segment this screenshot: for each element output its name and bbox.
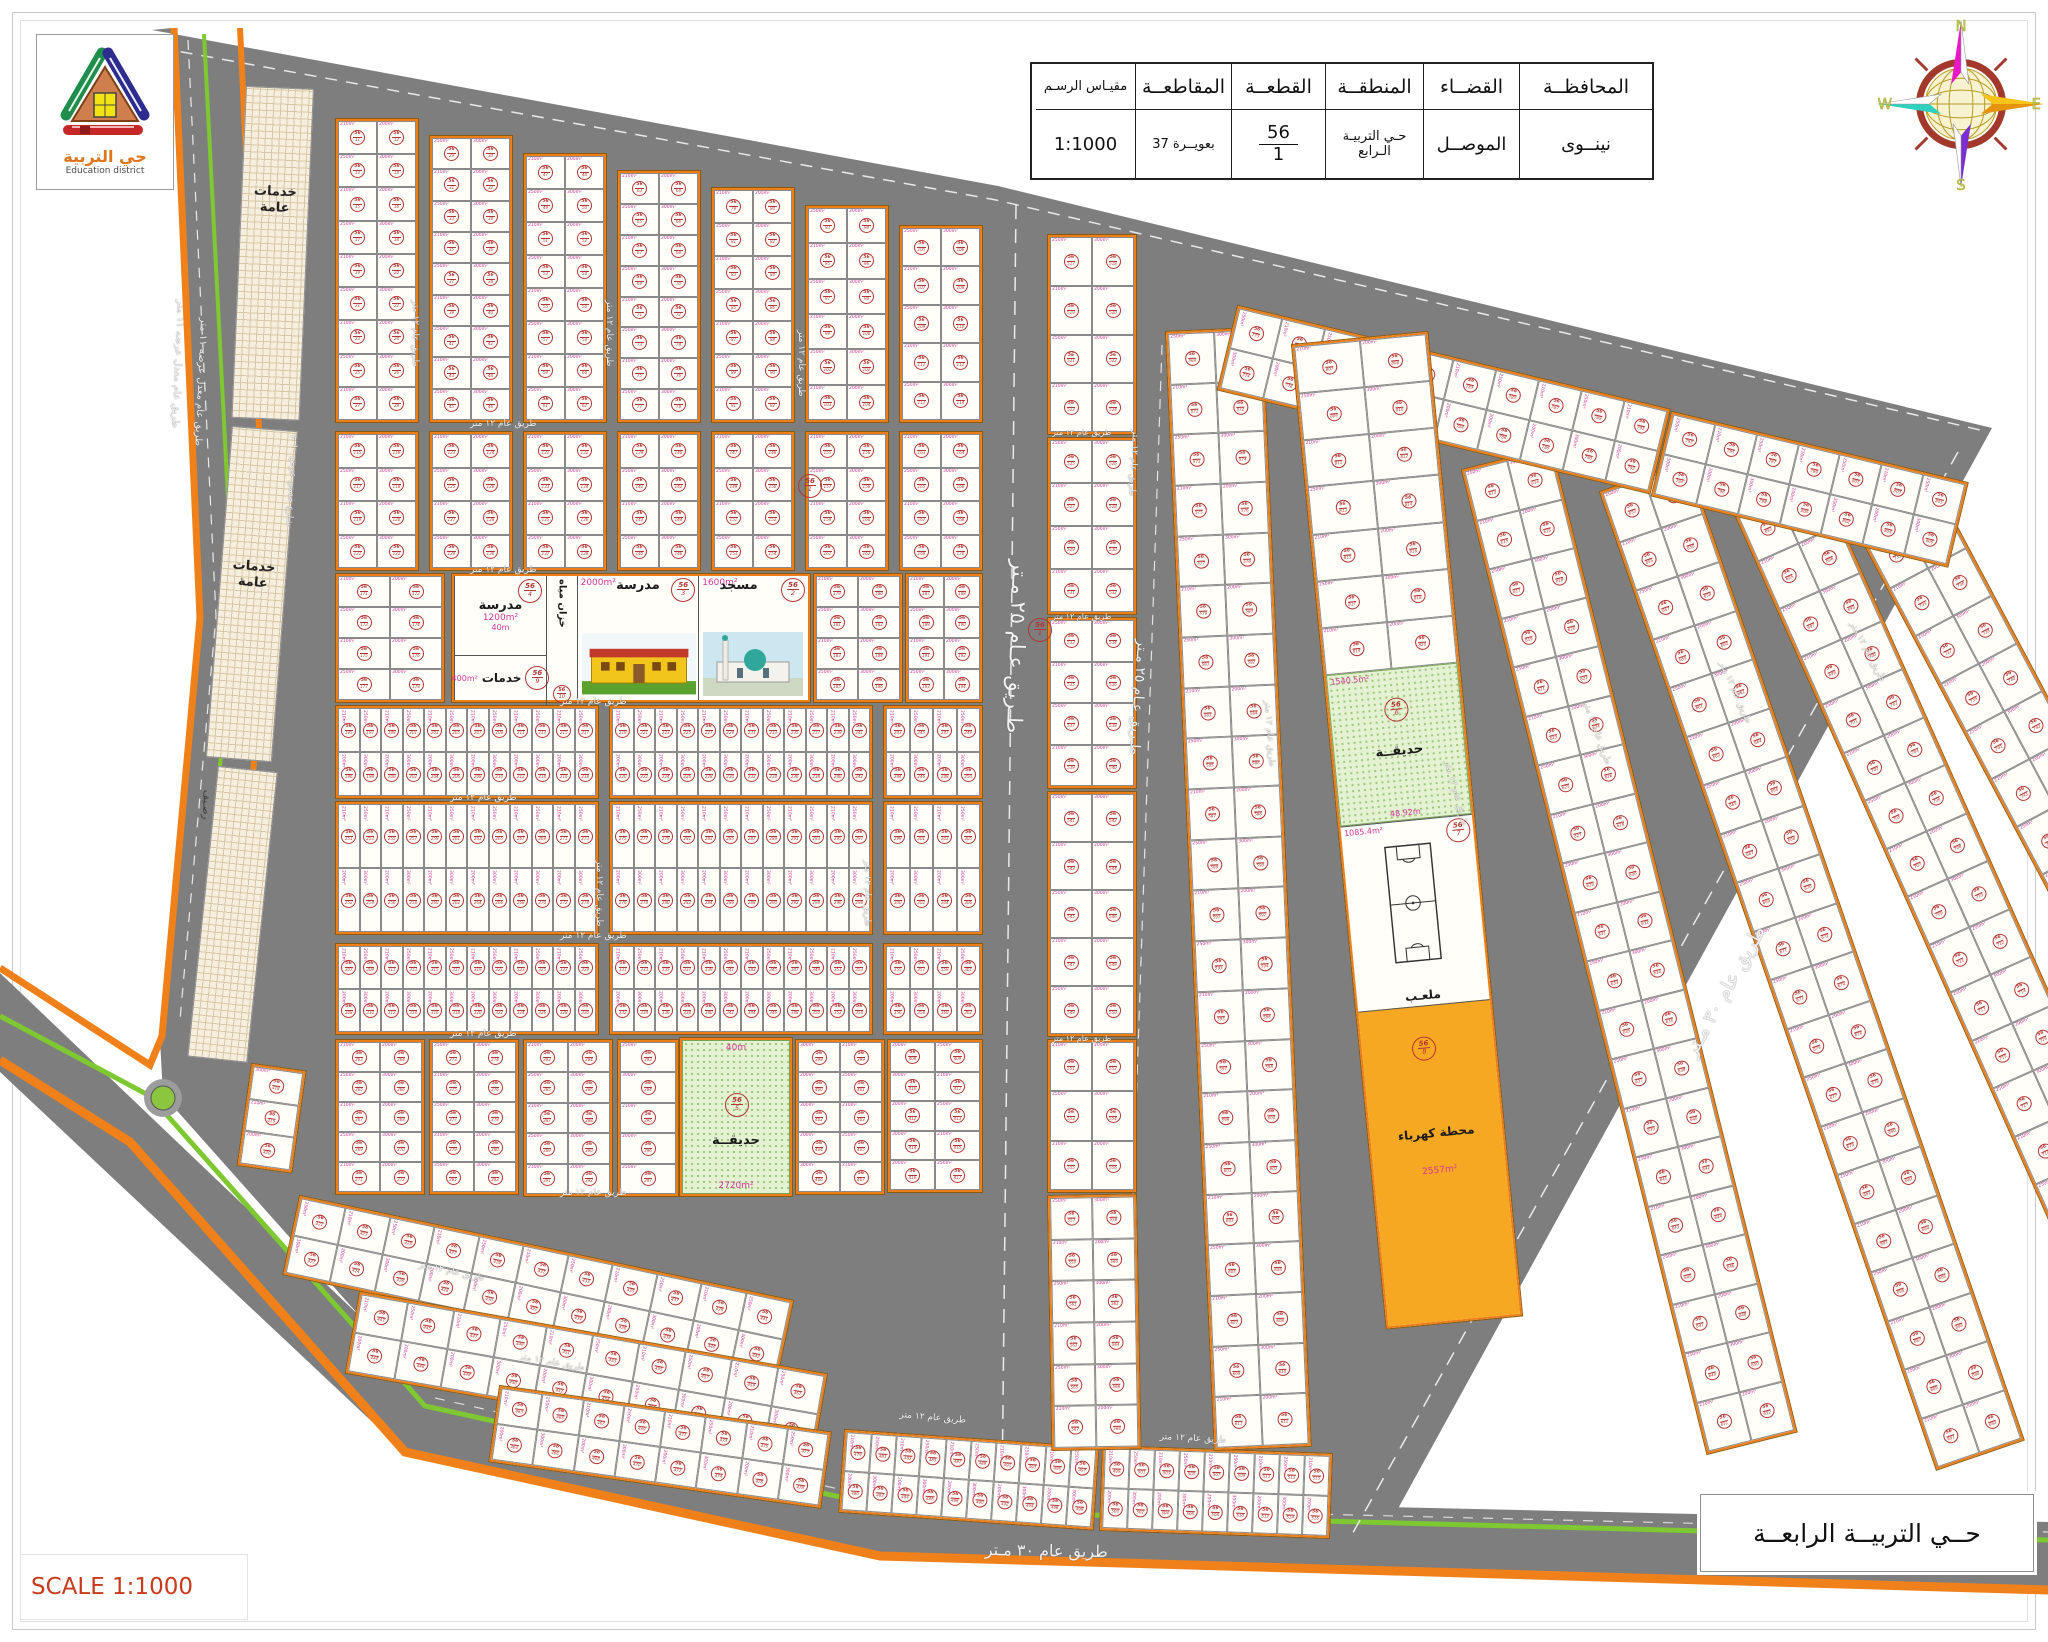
plot-area-label: 210m² — [522, 1248, 529, 1263]
plot-stamp: 5652 — [577, 231, 592, 246]
plot-stamp: 56152 — [765, 510, 780, 525]
plot-stamp: 56254 — [363, 893, 378, 908]
plot-area-label: 210m² — [546, 1329, 553, 1344]
plot-cell: 56549250m² — [1050, 986, 1092, 1034]
plot-area-label: 210m² — [1052, 747, 1067, 752]
plot-area-label: 210m² — [716, 389, 731, 394]
plot-stamp: 56676 — [1848, 1022, 1867, 1041]
plot-area-label: 300m² — [534, 754, 539, 769]
plot-area-label: 250m² — [745, 1295, 752, 1310]
logo-icon — [49, 41, 161, 141]
plot-area-label: 210m² — [638, 1346, 645, 1361]
plot-cell: 56556200m² — [1092, 1141, 1134, 1190]
plot-area-label: 300m² — [1570, 433, 1578, 448]
plot-stamp: 56619 — [1519, 629, 1537, 647]
plot-cell: 56155210m² — [808, 434, 847, 468]
plot-stamp: 56469 — [634, 1418, 651, 1435]
plot-stamp: 56168 — [953, 510, 968, 525]
plot-cell: 56510300m² — [1227, 1492, 1253, 1533]
plot-area-label: 210m² — [528, 1105, 543, 1110]
plot-area-label: 250m² — [300, 1201, 307, 1216]
plot-cell: 56199210m² — [381, 708, 403, 752]
plot-area-label: 300m² — [392, 671, 407, 676]
plot-area-label: 200m² — [800, 1074, 815, 1079]
plot-cell: 56284200m² — [698, 868, 720, 932]
plot-stamp: 56590 — [1252, 855, 1268, 871]
plot-cell: 56542300m² — [1092, 794, 1134, 842]
plot-stamp: 56419 — [263, 1110, 280, 1127]
plot-area-label: 200m² — [469, 870, 474, 885]
plot-area-label: 200m² — [1240, 890, 1255, 895]
plot-area-label: 300m² — [770, 1408, 777, 1423]
plot-area-label: 210m² — [1931, 940, 1946, 950]
public-services-strip: خدمات عامة — [232, 86, 314, 421]
plot-area-label: 300m² — [1229, 637, 1244, 642]
plot-area-label: 200m² — [860, 640, 875, 645]
plot-area-label: 200m² — [379, 189, 394, 194]
plot-area-label: 200m² — [379, 503, 394, 508]
city-block: 5693250m²5694300m²5695210m²5696200m²5697… — [806, 206, 888, 422]
plot-area-label: 300m² — [912, 991, 917, 1006]
city-block: 56155210m²56156200m²56157250m²56158300m²… — [806, 432, 888, 570]
plot-area-label: 210m² — [614, 806, 619, 821]
plot-cell: 56318300m² — [446, 989, 468, 1032]
plot-cell: 56227210m² — [698, 708, 720, 752]
plot-stamp: 56372 — [394, 1170, 409, 1185]
plot-cell: 56480200m² — [841, 1471, 869, 1512]
plot-stamp: 56789 — [1589, 407, 1607, 425]
plot-area-label: 300m² — [1367, 388, 1382, 394]
plot-stamp: 56571 — [1187, 401, 1203, 417]
plot-cell: 56193250m² — [908, 669, 944, 700]
plot-area-label: 210m² — [1296, 347, 1311, 353]
plot-area-label: 300m² — [1230, 1494, 1235, 1509]
plot-cell: 56517250m² — [1050, 237, 1092, 286]
plot-cell: 56808200m² — [1360, 334, 1430, 387]
city-block: 56393250m²56394300m²56395210m²56396200m²… — [618, 1040, 678, 1196]
plot-stamp: 56404 — [812, 1140, 827, 1155]
plot-area-label: 300m² — [619, 1443, 626, 1458]
plot-cell: 56215210m² — [553, 708, 575, 752]
plot-area-label: 300m² — [1094, 1093, 1109, 1098]
plot-area-label: 210m² — [469, 806, 474, 821]
plot-cell: 56532200m² — [1092, 569, 1134, 612]
plot-cell: 56527210m² — [1050, 483, 1092, 526]
plot-stamp: 56394 — [641, 1080, 656, 1095]
plot-cell: 5645250m² — [432, 389, 471, 420]
plot-area-label: 250m² — [622, 1044, 637, 1049]
plot-stamp: 56437 — [667, 1288, 685, 1306]
plot-area-label: 250m² — [1672, 417, 1680, 432]
plot-cell: 56261250m² — [446, 804, 468, 868]
plot-area-label: 200m² — [786, 754, 791, 769]
plot-cell: 56252200m² — [338, 868, 360, 932]
plot-stamp: 56625 — [1556, 776, 1574, 794]
plot-cell: 56575210m² — [1175, 484, 1223, 537]
plot-cell: 56813250m² — [1308, 481, 1378, 534]
plot-area-label: 300m² — [849, 537, 864, 542]
plot-area-label: 250m² — [1825, 700, 1840, 710]
plot-area-label: 300m² — [1912, 517, 1920, 532]
plot-stamp: 56735 — [1912, 592, 1932, 612]
plot-area-label: 250m² — [1494, 372, 1502, 387]
plot-stamp: 56551 — [1064, 1059, 1079, 1074]
plot-area-label: 250m² — [1052, 705, 1067, 710]
plot-area-label: 250m² — [1175, 436, 1190, 441]
plot-cell: 56259210m² — [424, 804, 446, 868]
city-block: 56171210m²56172200m²56173250m²56174300m²… — [336, 574, 444, 702]
plot-area-label: 210m² — [250, 1101, 265, 1108]
plot-area-label: 300m² — [808, 870, 813, 885]
plot-stamp: 56107 — [914, 278, 929, 293]
plot-stamp: 56685 — [1890, 1280, 1909, 1299]
plot-area-label: 300m² — [1681, 1145, 1696, 1153]
plot-stamp: 5639 — [444, 303, 459, 318]
plot-area-label: 300m² — [1829, 497, 1837, 512]
plot-area-label: 210m² — [528, 1044, 543, 1049]
logo-subtitle: Education district — [37, 166, 173, 176]
plot-cell: 56376200m² — [474, 1072, 516, 1102]
plot-stamp: 56713 — [1971, 998, 1991, 1018]
plot-stamp: 56526 — [1106, 454, 1121, 469]
city-block: 56533250m²56534300m²56535210m²56536200m²… — [1048, 618, 1136, 788]
plot-area-label: 300m² — [392, 609, 407, 614]
plot-stamp: 56147 — [726, 443, 741, 458]
plot-stamp: 562 — [781, 578, 805, 602]
plot-stamp: 56595 — [1213, 1009, 1229, 1025]
plot-area-label: 200m² — [1254, 1194, 1269, 1199]
plot-area-label: 250m² — [528, 1135, 543, 1140]
plot-stamp: 56671 — [1773, 939, 1792, 958]
plot-cell: 5620200m² — [377, 254, 416, 287]
plot-area-label: 250m² — [912, 948, 917, 963]
plot-area-label: 300m² — [849, 351, 864, 356]
plot-stamp: 56679 — [1840, 1134, 1859, 1153]
road-label: طريق عام ٣٠ مـتر — [985, 1540, 1108, 1561]
plot-stamp: 56773 — [1247, 324, 1265, 342]
plot-area-label: 200m² — [660, 1449, 667, 1464]
plot-area-label: 210m² — [622, 436, 637, 441]
plot-area-label: 200m² — [1798, 914, 1813, 923]
plot-area-label: 200m² — [567, 290, 582, 295]
plot-area-label: 250m² — [577, 806, 582, 821]
plot-area-label: 210m² — [512, 948, 517, 963]
plot-stamp: 56133 — [538, 477, 553, 492]
plot-cell: 5669250m² — [620, 266, 659, 297]
plot-cell: 5663210m² — [620, 173, 659, 204]
plot-stamp: 56283 — [701, 829, 716, 844]
plot-cell: 56113250m² — [902, 382, 941, 420]
plot-stamp: 56609 — [1229, 1363, 1245, 1379]
plot-area-label: 200m² — [1044, 1487, 1050, 1502]
plot-area-label: 250m² — [716, 356, 731, 361]
plot-area-label: 210m² — [528, 1166, 543, 1171]
plot-stamp: 5611 — [350, 130, 365, 145]
plot-stamp: 56745 — [2038, 831, 2048, 851]
plot-cell: 56364200m² — [380, 1042, 422, 1072]
plot-stamp: 5655 — [538, 297, 553, 312]
plot-cell: 5646300m² — [471, 389, 510, 420]
plot-area-label: 300m² — [1607, 851, 1622, 859]
plot-area-label: 300m² — [362, 991, 367, 1006]
plot-area-label: 250m² — [904, 384, 919, 389]
plot-stamp: 56120 — [389, 510, 404, 525]
plot-area-label: 200m² — [337, 1247, 344, 1262]
plot-cell: 5639210m² — [432, 295, 471, 326]
road-label: طريق عام ١٢ متر — [1052, 428, 1111, 437]
plot-area-label: 300m² — [405, 870, 410, 885]
plot-stamp: 56268 — [513, 893, 528, 908]
city-block: 56131210m²56132200m²56133250m²56134300m²… — [524, 432, 606, 570]
plot-cell: 56119210m² — [338, 501, 377, 535]
plot-area-label: 210m² — [935, 948, 940, 963]
plot-area-label: 250m² — [1838, 457, 1846, 472]
plot-cell: 56402300m² — [798, 1102, 840, 1132]
plot-stamp: 56632 — [1635, 912, 1653, 930]
plot-cell: 56169250m² — [902, 535, 941, 569]
city-block: 56363210m²56364200m²56365250m²56366300m²… — [336, 1040, 424, 1194]
plot-area-label: 200m² — [473, 171, 488, 176]
plot-cell: 56134300m² — [565, 468, 604, 502]
plot-stamp: 56790 — [1580, 446, 1598, 464]
plot-stamp: 56603 — [1222, 1211, 1238, 1227]
plot-area-label: 200m² — [1693, 1194, 1708, 1202]
plot-cell: 5662300m² — [565, 387, 604, 420]
plot-area-label: 210m² — [829, 710, 834, 725]
plot-stamp: 56402 — [812, 1110, 827, 1125]
plot-stamp: 56639 — [1642, 1119, 1660, 1137]
plot-area-label: 210m² — [1314, 535, 1329, 541]
plot-stamp: 56661 — [1689, 696, 1708, 715]
plot-area-label: 200m² — [829, 754, 834, 769]
plot-cell: 5613250m² — [338, 154, 377, 187]
plot-area-label: 250m² — [1052, 337, 1067, 342]
plot-stamp: 56169 — [914, 544, 929, 559]
plot-stamp: 56597 — [1215, 1059, 1231, 1075]
plot-cell: 56235210m² — [784, 708, 806, 752]
plot-area-label: 250m² — [1183, 639, 1198, 644]
plot-stamp: 56655 — [1639, 550, 1658, 569]
plot-area-label: 200m² — [578, 1438, 585, 1453]
plot-cell: 56322300m² — [489, 989, 511, 1032]
plot-area-label: 300m² — [1662, 457, 1670, 472]
plot-area-label: 300m² — [1069, 1489, 1075, 1504]
plot-area-label: 300m² — [1747, 768, 1762, 777]
plot-stamp: 56517 — [1064, 254, 1079, 269]
plot-stamp: 5666 — [671, 212, 686, 227]
plot-stamp: 56644 — [1709, 1206, 1727, 1224]
plot-stamp: 56365 — [352, 1080, 367, 1095]
plot-area-label: 210m² — [700, 948, 705, 963]
plot-stamp: 56409 — [950, 1049, 965, 1064]
plot-cell: 56187210m² — [908, 576, 944, 607]
plot-cell: 56265250m² — [489, 804, 511, 868]
plot-stamp: 56140 — [671, 443, 686, 458]
plot-area-label: 210m² — [910, 578, 925, 583]
plot-cell: 56346300m² — [763, 989, 785, 1032]
plot-area-label: 210m² — [501, 1391, 508, 1406]
plot-cell: 56238300m² — [806, 752, 828, 796]
plot-cell: 56568200m² — [1096, 1405, 1139, 1447]
plot-stamp: 56142 — [671, 477, 686, 492]
plot-area-label: 300m² — [808, 754, 813, 769]
plot-cell: 56236200m² — [784, 752, 806, 796]
plot-area-label: 200m² — [786, 991, 791, 1006]
plot-area-label: 300m² — [534, 870, 539, 885]
plot-stamp: 56403 — [854, 1110, 869, 1125]
plot-area-label: 210m² — [340, 640, 355, 645]
plot-stamp: 5623 — [350, 329, 365, 344]
parcel-fraction: 561 — [1259, 123, 1298, 165]
plot-stamp: 56806 — [1921, 530, 1939, 548]
plot-area-label: 250m² — [765, 948, 770, 963]
plot-cell: 56176200m² — [390, 638, 442, 669]
plot-stamp: 56629 — [1581, 874, 1599, 892]
plot-cell: 5618300m² — [377, 221, 416, 254]
plot-stamp: 56658 — [1697, 584, 1716, 603]
plot-cell: 56807210m² — [1294, 340, 1364, 393]
plot-stamp: 56117 — [350, 477, 365, 492]
plot-area-label: 200m² — [570, 1044, 585, 1049]
plot-area-label: 300m² — [577, 754, 582, 769]
plot-stamp: 56367 — [352, 1110, 367, 1125]
plot-stamp: 56266 — [492, 893, 507, 908]
plot-cell: 56352200m² — [827, 989, 849, 1032]
plot-area-label: 210m² — [1156, 1452, 1161, 1467]
plot-cell: 56482300m² — [866, 1473, 894, 1514]
plot-stamp: 56263 — [470, 829, 485, 844]
plot-area-label: 250m² — [1052, 892, 1067, 897]
plot-cell: 56340200m² — [698, 989, 720, 1032]
plot-cell: 56306300m² — [957, 868, 981, 932]
plot-stamp: 56615 — [1495, 531, 1513, 549]
plot-stamp: 56652 — [1758, 1402, 1776, 1420]
plot-cell: 5689250m² — [714, 354, 753, 387]
plot-cell: 56133250m² — [526, 468, 565, 502]
plot-area-label: 200m² — [512, 991, 517, 1006]
plot-stamp: 5659 — [538, 363, 553, 378]
plot-cell: 5671210m² — [620, 297, 659, 328]
plot-area-label: 200m² — [382, 1044, 397, 1049]
plot-area-label: 200m² — [1668, 1096, 1683, 1104]
plot-stamp: 56565 — [1067, 1377, 1082, 1392]
plot-area-label: 200m² — [446, 1351, 453, 1366]
plot-area-label: 300m² — [400, 1343, 407, 1358]
plot-stamp: 56626 — [1599, 765, 1617, 783]
plot-stamp: 56300 — [890, 893, 905, 908]
plot-stamp: 56126 — [483, 477, 498, 492]
plot-area-label: 300m² — [473, 265, 488, 270]
plot-cell: 56114300m² — [941, 382, 980, 420]
park-parcel: 1540.5m² 566 حديقــة 48.92m — [1326, 663, 1472, 827]
plot-cell: 5691210m² — [714, 387, 753, 420]
plot-area-label: 300m² — [1130, 1491, 1135, 1506]
plot-area-label: 210m² — [528, 224, 543, 229]
plot-stamp: 56677 — [1823, 1085, 1842, 1104]
plot-cell: 56153250m² — [714, 535, 753, 569]
plot-stamp: 56399 — [854, 1050, 869, 1065]
plot-stamp: 56132 — [577, 443, 592, 458]
plot-stamp: 5620 — [389, 263, 404, 278]
plot-area-label: 250m² — [491, 710, 496, 725]
compass-n: N — [1955, 18, 1966, 35]
plot-cell: 56407210m² — [840, 1162, 882, 1192]
power-station-parcel: 568 محطة كهرباء 2557m² — [1358, 999, 1520, 1326]
plot-area-label: 300m² — [567, 470, 582, 475]
plot-area-label: 250m² — [1206, 1145, 1221, 1150]
plot-cell: 56202300m² — [403, 752, 425, 796]
plot-stamp: 56153 — [726, 544, 741, 559]
plot-area-label: 210m² — [528, 503, 543, 508]
plot-stamp: 56391 — [540, 1171, 555, 1186]
plot-area-label: 250m² — [434, 1044, 449, 1049]
plot-stamp: 56740 — [2000, 667, 2020, 687]
plot-stamp: 56701 — [1843, 710, 1863, 730]
plot-cell: 56415210m² — [935, 1131, 980, 1161]
plot-stamp: 56384 — [582, 1050, 597, 1065]
plot-area-label: 210m² — [700, 806, 705, 821]
plot-cell: 56534300m² — [1092, 620, 1134, 662]
plot-cell: 56302300m² — [910, 868, 934, 932]
plot-cell: 56283210m² — [698, 804, 720, 868]
plot-stamp: 5646 — [483, 397, 498, 412]
plot-stamp: 56672 — [1815, 925, 1834, 944]
plot-stamp: 56138 — [577, 544, 592, 559]
plot-area-label: 250m² — [1638, 1155, 1653, 1163]
plot-cell: 56242300m² — [849, 752, 871, 796]
plot-stamp: 56473 — [715, 1429, 732, 1446]
plot-cell: 56139210m² — [620, 434, 659, 468]
plot-stamp: 56176 — [409, 646, 424, 661]
plot-cell: 56374300m² — [474, 1042, 516, 1072]
plot-area-label: 300m² — [1632, 949, 1647, 957]
plot-area-label: 300m² — [1256, 1245, 1271, 1250]
plot-area-label: 300m² — [559, 1295, 566, 1310]
plot-stamp: 56435 — [622, 1279, 640, 1297]
plot-stamp: 56579 — [1195, 604, 1211, 620]
plot-stamp: 56381 — [446, 1170, 461, 1185]
plot-area-label: 210m² — [743, 710, 748, 725]
plot-stamp: 56387 — [540, 1110, 555, 1125]
plot-area-label: 200m² — [888, 870, 893, 885]
plot-stamp: 56129 — [444, 544, 459, 559]
plot-area-label: 210m² — [433, 1229, 440, 1244]
plot-area-label: 300m² — [782, 1466, 789, 1481]
plot-area-label: 200m² — [1613, 443, 1621, 458]
plot-area-label: 200m² — [755, 436, 770, 441]
plot-cell: 56147210m² — [714, 434, 753, 468]
plot-stamp: 56187 — [919, 584, 934, 599]
plot-area-label: 300m² — [1950, 874, 1965, 884]
plot-cell: 56246300m² — [910, 752, 934, 796]
plot-area-label: 210m² — [469, 948, 474, 963]
plot-area-label: 300m² — [577, 870, 582, 885]
plot-stamp: 56173 — [357, 615, 372, 630]
plot-stamp: 56179 — [830, 584, 845, 599]
plot-stamp: 56785 — [1504, 386, 1522, 404]
plot-cell: 5679210m² — [714, 190, 753, 223]
plot-cell: 56469250m² — [619, 1405, 665, 1446]
plot-area-label: 200m² — [1094, 485, 1109, 490]
plot-cell: 56515210m² — [1303, 1455, 1329, 1496]
plot-cell: 56349250m² — [806, 946, 828, 989]
plot-area-label: 210m² — [340, 389, 355, 394]
plot-stamp: 56412 — [905, 1108, 920, 1123]
plot-area-label: 210m² — [434, 1074, 449, 1079]
plot-stamp: 56805 — [1931, 490, 1949, 508]
plot-cell: 56168200m² — [941, 501, 980, 535]
road-label: طريق عام ١٢ متر — [470, 565, 537, 575]
